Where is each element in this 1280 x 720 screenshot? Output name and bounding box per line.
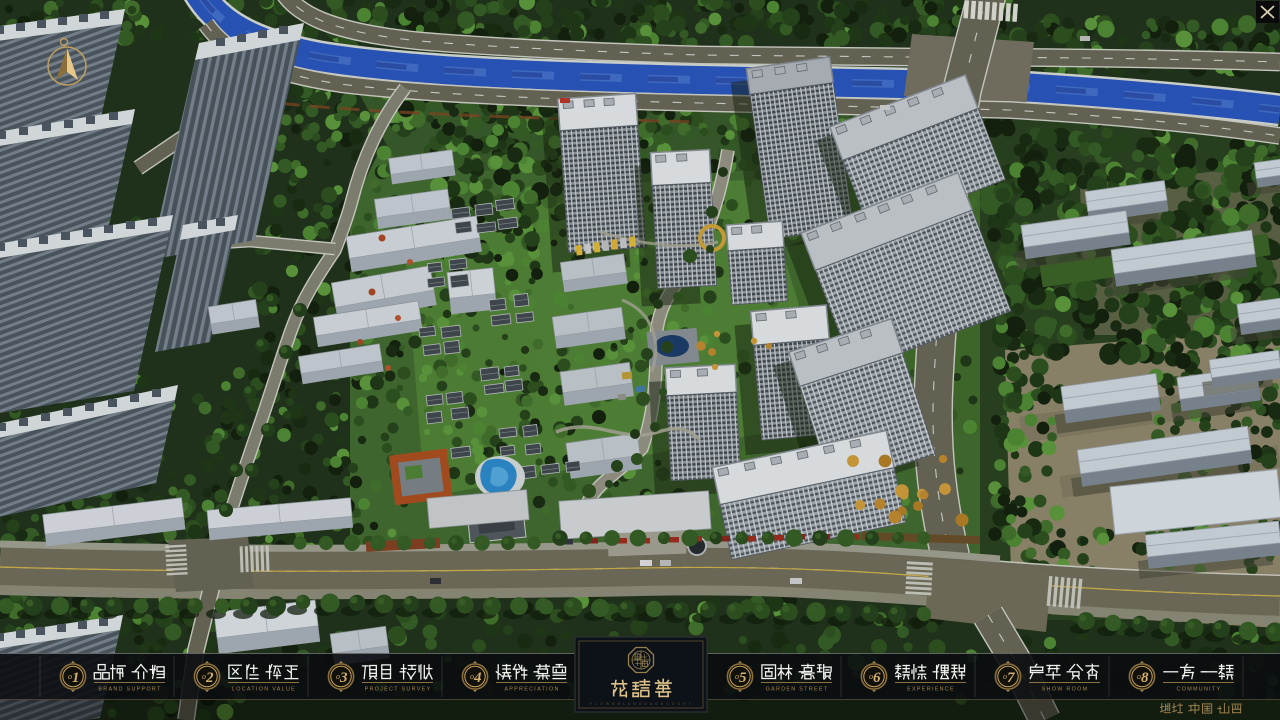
svg-text:LOCATION VALUE: LOCATION VALUE [232,687,296,693]
svg-text:SHOW ROOM: SHOW ROOM [1042,687,1089,693]
svg-text:7: 7 [1007,670,1015,686]
svg-text:APPRECIATION: APPRECIATION [504,687,559,693]
svg-text:EXPERIENCE: EXPERIENCE [907,687,955,693]
svg-text:BRAND SUPPORT: BRAND SUPPORT [98,687,161,693]
svg-text:5: 5 [739,670,747,686]
svg-text:8: 8 [1141,670,1149,686]
svg-text:4: 4 [473,670,482,686]
svg-text:COMMUNITY: COMMUNITY [1177,687,1222,693]
svg-text:F L O W E R L A N G U A G E: F L O W E R L A N G U A G E C O U R T [590,702,692,706]
svg-text:3: 3 [339,670,348,686]
svg-text:1: 1 [72,670,80,686]
svg-text:PROJECT SURVEY: PROJECT SURVEY [365,687,432,693]
svg-text:6: 6 [873,670,881,686]
svg-text:2: 2 [205,670,214,686]
svg-text:GARDEN STREET: GARDEN STREET [766,687,829,693]
